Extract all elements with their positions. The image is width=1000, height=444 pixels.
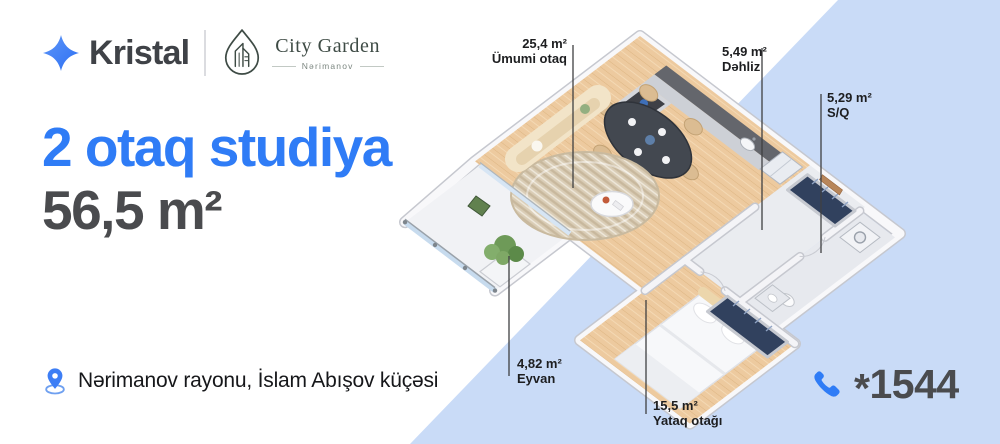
- location-text: Nərimanov rayonu, İslam Abışov küçəsi: [78, 369, 438, 393]
- room-label-umumi-otaq: 25,4 m² Ümumi otaq: [492, 36, 567, 66]
- room-area: 25,4 m²: [492, 36, 567, 51]
- phone-number: *1544: [854, 362, 959, 406]
- city-garden-droplet-icon: [221, 28, 263, 78]
- rug: [511, 152, 659, 240]
- coffee-table: [591, 192, 633, 217]
- dash-left: [272, 66, 296, 67]
- phone-prefix: *: [854, 366, 869, 410]
- phone-digits: 1544: [869, 361, 958, 407]
- room-name: Dəhliz: [722, 59, 767, 74]
- sofa-pillow-green: [580, 104, 590, 114]
- sofa-pillow-white: [532, 141, 543, 152]
- location-pin-icon: [42, 366, 68, 395]
- room-area: 5,49 m²: [722, 44, 767, 59]
- dash-right: [360, 66, 384, 67]
- phone-icon: [812, 369, 842, 399]
- apartment-type-title: 2 otaq studiya: [42, 116, 391, 179]
- room-name: Yataq otağı: [653, 413, 722, 428]
- apartment-area-title: 56,5 m²: [42, 179, 391, 242]
- room-label-yataq-otagi: 15,5 m² Yataq otağı: [653, 398, 722, 428]
- room-label-sq: 5,29 m² S/Q: [827, 90, 872, 120]
- room-name: Ümumi otaq: [492, 51, 567, 66]
- city-garden-text: City Garden Nərimanov: [272, 35, 384, 71]
- logo-row: Kristal City Garden Nərimanov: [42, 26, 384, 80]
- kristal-logo: Kristal: [42, 34, 189, 73]
- project-name: City Garden: [275, 35, 380, 58]
- room-area: 4,82 m²: [517, 356, 562, 371]
- phone-cta[interactable]: *1544: [812, 362, 959, 406]
- project-subtitle-row: Nərimanov: [272, 61, 384, 71]
- location-row: Nərimanov rayonu, İslam Abışov küçəsi: [42, 366, 438, 395]
- room-label-dahliz: 5,49 m² Dəhliz: [722, 44, 767, 74]
- room-area: 5,29 m²: [827, 90, 872, 105]
- headline: 2 otaq studiya 56,5 m²: [42, 116, 391, 242]
- city-garden-logo: City Garden Nərimanov: [221, 28, 384, 78]
- logo-divider: [204, 30, 206, 76]
- real-estate-banner: 25,4 m² Ümumi otaq 5,49 m² Dəhliz 5,29 m…: [0, 0, 1000, 444]
- kristal-diamond-icon: [42, 34, 80, 72]
- room-label-eyvan: 4,82 m² Eyvan: [517, 356, 562, 386]
- project-subtitle: Nərimanov: [302, 61, 354, 71]
- kristal-brand-name: Kristal: [89, 34, 189, 73]
- room-name: S/Q: [827, 105, 872, 120]
- room-name: Eyvan: [517, 371, 562, 386]
- decor-bowl: [603, 197, 610, 204]
- room-area: 15,5 m²: [653, 398, 722, 413]
